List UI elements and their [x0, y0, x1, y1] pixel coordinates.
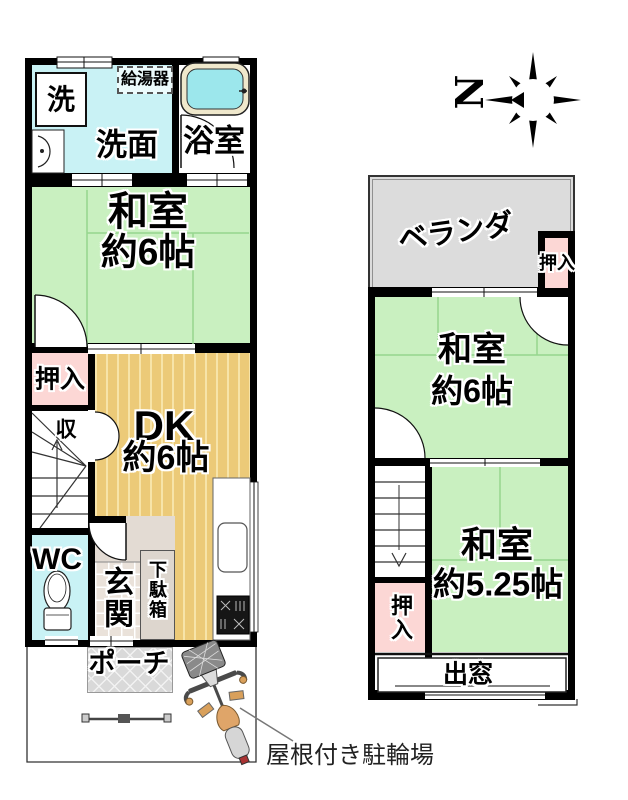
outer-wall-2f-left [368, 287, 375, 700]
bicycle-parking-annotation: 屋根付き駐輪場 [266, 735, 434, 770]
wall-tatami-dk [25, 343, 257, 353]
label-water-heater: 給湯器 [121, 72, 169, 88]
label-bathroom: 浴室 [183, 126, 245, 157]
wall-veranda-room [368, 287, 575, 297]
label-wc: WC [32, 545, 82, 575]
stairs-linework-2f [375, 482, 425, 566]
label-washroom: 洗面 [96, 130, 158, 161]
compass-north-label: N [451, 75, 489, 110]
label-tatami6-1f-1: 和室 [108, 192, 188, 232]
label-closet-2f-bottom: 押入 [389, 594, 411, 642]
wall-washroom-bathroom [172, 65, 179, 173]
label-tatami6-1f-2: 約6帖 [101, 234, 196, 271]
wall-dk-hall [88, 516, 126, 523]
label-tatami525-1: 和室 [461, 527, 533, 563]
wall-stairs-wc [25, 528, 95, 535]
label-tatami6-2f-2: 約6帖 [431, 375, 513, 407]
wall-stairs-2f [425, 466, 432, 658]
label-tatami6-2f-1: 和室 [438, 333, 506, 367]
compass-rose [485, 52, 581, 148]
floor-plan-canvas: 洗 給湯器 洗面 浴室 和室 約6帖 押入 収 DK 約6帖 WC 玄関 下駄箱… [0, 0, 628, 800]
label-entrance: 玄関 [100, 566, 130, 630]
label-tatami525-2: 約5.25帖 [433, 568, 563, 601]
label-storage: 収 [56, 420, 77, 441]
wall-leftcolumn-dk [88, 343, 95, 647]
label-shoe-cabinet: 下駄箱 [148, 560, 166, 620]
label-dk-2: 約6帖 [123, 441, 210, 475]
bicycle-icon [168, 634, 275, 775]
label-bay-window: 出窓 [443, 663, 493, 688]
gate [82, 714, 171, 723]
label-closet-1f: 押入 [35, 368, 85, 393]
wall-stairs-closet-2f [368, 577, 432, 583]
wall-tatami6-tatami525 [368, 458, 575, 466]
label-porch: ポーチ [89, 651, 170, 678]
label-laundry: 洗 [47, 86, 75, 114]
label-closet-2f-top: 押入 [539, 254, 575, 272]
outer-wall-2f-bottom [368, 690, 575, 700]
wall-washroom-tatami [25, 173, 257, 187]
wall-closet-stairs [25, 405, 95, 411]
